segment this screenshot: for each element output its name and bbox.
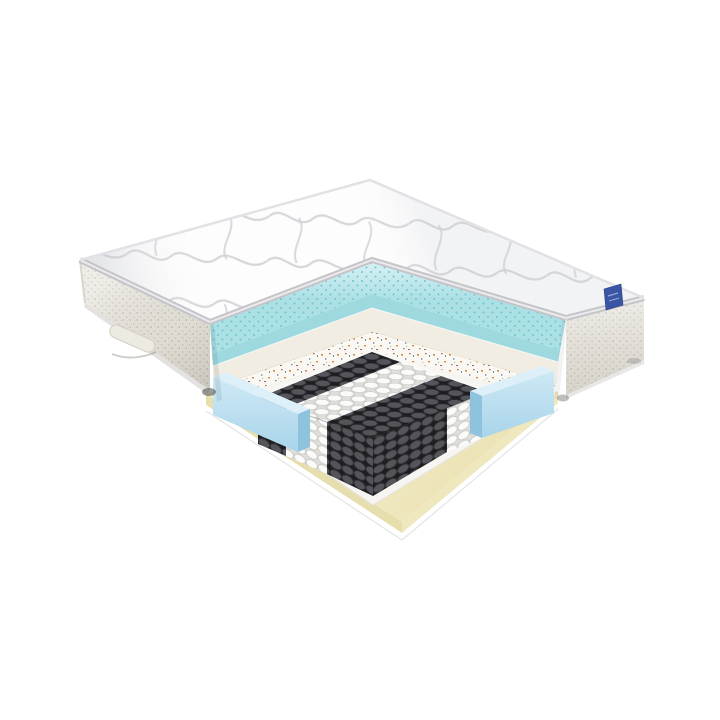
brand-tag-body	[604, 284, 623, 310]
foot-shadow-mid	[557, 395, 569, 402]
edge-foam-left-end	[298, 409, 310, 452]
foot-shadow-left	[202, 388, 216, 396]
brand-tag	[604, 284, 623, 310]
foot-shadow-right	[627, 358, 641, 364]
product-image-canvas: 3D cutaway render of a hybrid pocket-spr…	[0, 0, 720, 720]
edge-foam-right-end	[470, 391, 482, 438]
